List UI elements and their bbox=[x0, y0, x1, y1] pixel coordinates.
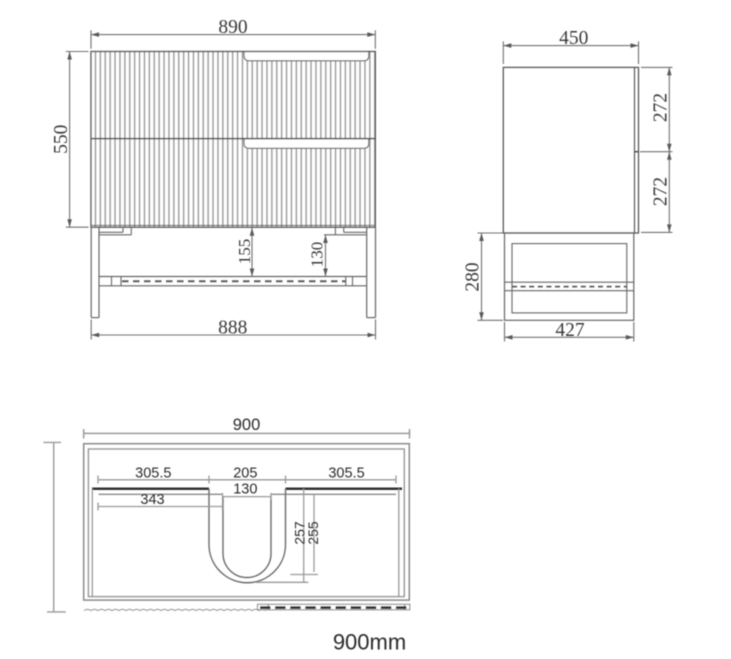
svg-text:272: 272 bbox=[651, 93, 672, 122]
svg-text:888: 888 bbox=[218, 318, 247, 339]
svg-text:305.5: 305.5 bbox=[328, 465, 364, 481]
svg-text:900mm: 900mm bbox=[333, 630, 406, 655]
svg-text:280: 280 bbox=[463, 262, 484, 291]
svg-text:343: 343 bbox=[140, 492, 164, 508]
svg-text:450: 450 bbox=[559, 28, 588, 49]
svg-text:155: 155 bbox=[235, 239, 254, 265]
svg-text:550: 550 bbox=[51, 125, 72, 154]
svg-text:427: 427 bbox=[555, 320, 585, 341]
svg-text:305.5: 305.5 bbox=[135, 465, 171, 481]
svg-text:130: 130 bbox=[233, 482, 257, 498]
svg-text:255: 255 bbox=[305, 521, 321, 545]
svg-text:900: 900 bbox=[233, 416, 261, 434]
svg-text:272: 272 bbox=[651, 177, 672, 206]
svg-text:890: 890 bbox=[218, 17, 247, 38]
svg-text:130: 130 bbox=[308, 242, 327, 268]
svg-text:205: 205 bbox=[233, 465, 257, 481]
